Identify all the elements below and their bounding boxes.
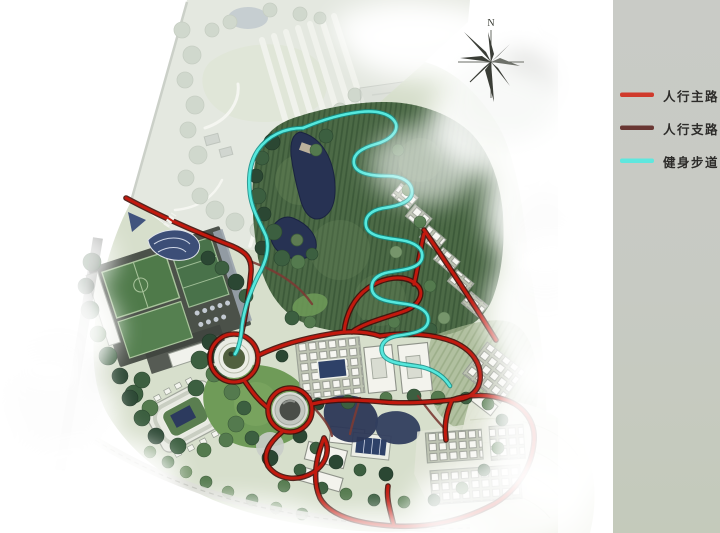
legend-item-fitness-trail: 健身步道 bbox=[620, 154, 720, 168]
legend-item-branch-road: 人行支路 bbox=[620, 121, 720, 135]
courtyard-pool bbox=[317, 358, 347, 379]
plan-canvas: N 人行主路 人行支路 健身步道 bbox=[0, 0, 720, 533]
site-plan-map: N bbox=[0, 0, 720, 533]
legend-label-fitness-trail: 健身步道 bbox=[663, 152, 719, 171]
grid-courtyard-building bbox=[295, 337, 365, 399]
legend-panel: 人行主路 人行支路 健身步道 bbox=[613, 0, 720, 533]
fog-margin bbox=[558, 0, 613, 533]
fitness-trail-swatch bbox=[620, 157, 654, 165]
main-road-swatch bbox=[620, 91, 654, 99]
legend-label-main-road: 人行主路 bbox=[663, 86, 719, 105]
dome-plaza bbox=[272, 392, 308, 428]
compass-north-label: N bbox=[487, 18, 494, 29]
roundabout bbox=[214, 338, 254, 378]
legend-item-main-road: 人行主路 bbox=[620, 88, 720, 102]
legend-label-branch-road: 人行支路 bbox=[663, 119, 719, 138]
branch-road-swatch bbox=[620, 124, 654, 132]
lake-island bbox=[291, 234, 303, 246]
legend: 人行主路 人行支路 健身步道 bbox=[613, 0, 720, 168]
